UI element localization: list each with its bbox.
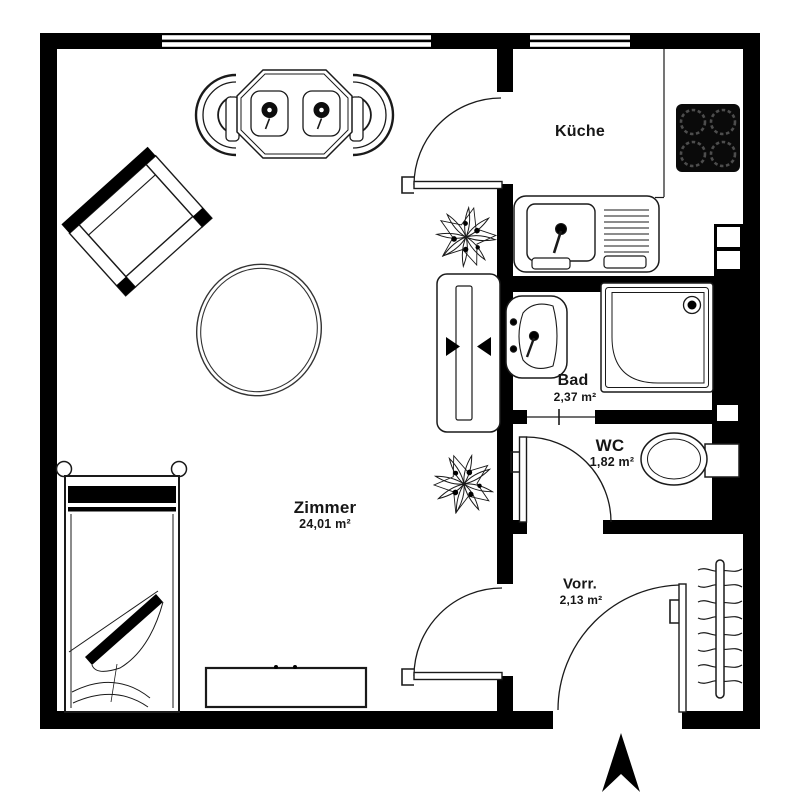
coat-rack: [698, 560, 742, 698]
sideboard: [206, 665, 366, 707]
washbasin: [506, 296, 567, 378]
plant-icon: [426, 446, 501, 521]
window-kueche: [528, 33, 632, 49]
floorplan-canvas: Zimmer 24,01 m² Küche Bad 2,37 m² WC 1,8…: [0, 0, 800, 800]
bed: [57, 462, 187, 713]
stove-icon: [676, 104, 740, 172]
room-label-kueche: Küche: [555, 123, 605, 141]
room-area-vorraum: 2,13 m²: [560, 593, 603, 607]
room-label-vorraum: Vorr.: [563, 576, 597, 593]
room-label-zimmer: Zimmer: [294, 498, 357, 518]
room-label-bad: Bad: [558, 372, 589, 390]
floorplan-drawing: [0, 0, 800, 800]
kitchen-sink: [514, 196, 659, 272]
door-vorraum: [402, 588, 502, 685]
door-kueche: [402, 98, 502, 193]
dining-table: [196, 70, 393, 158]
bad-doorway: [527, 409, 595, 425]
window-zimmer: [160, 33, 433, 49]
rug: [181, 249, 337, 410]
room-area-zimmer: 24,01 m²: [299, 517, 351, 531]
room-area-wc: 1,82 m²: [590, 455, 634, 469]
shower: [601, 283, 713, 392]
room-label-wc: WC: [596, 436, 625, 456]
armchair: [61, 147, 211, 296]
north-arrow-icon: [602, 733, 640, 792]
tv-board: [437, 274, 500, 432]
plant-icon: [430, 201, 501, 273]
kitchen-counter: [655, 49, 664, 198]
room-area-bad: 2,37 m²: [554, 390, 597, 404]
